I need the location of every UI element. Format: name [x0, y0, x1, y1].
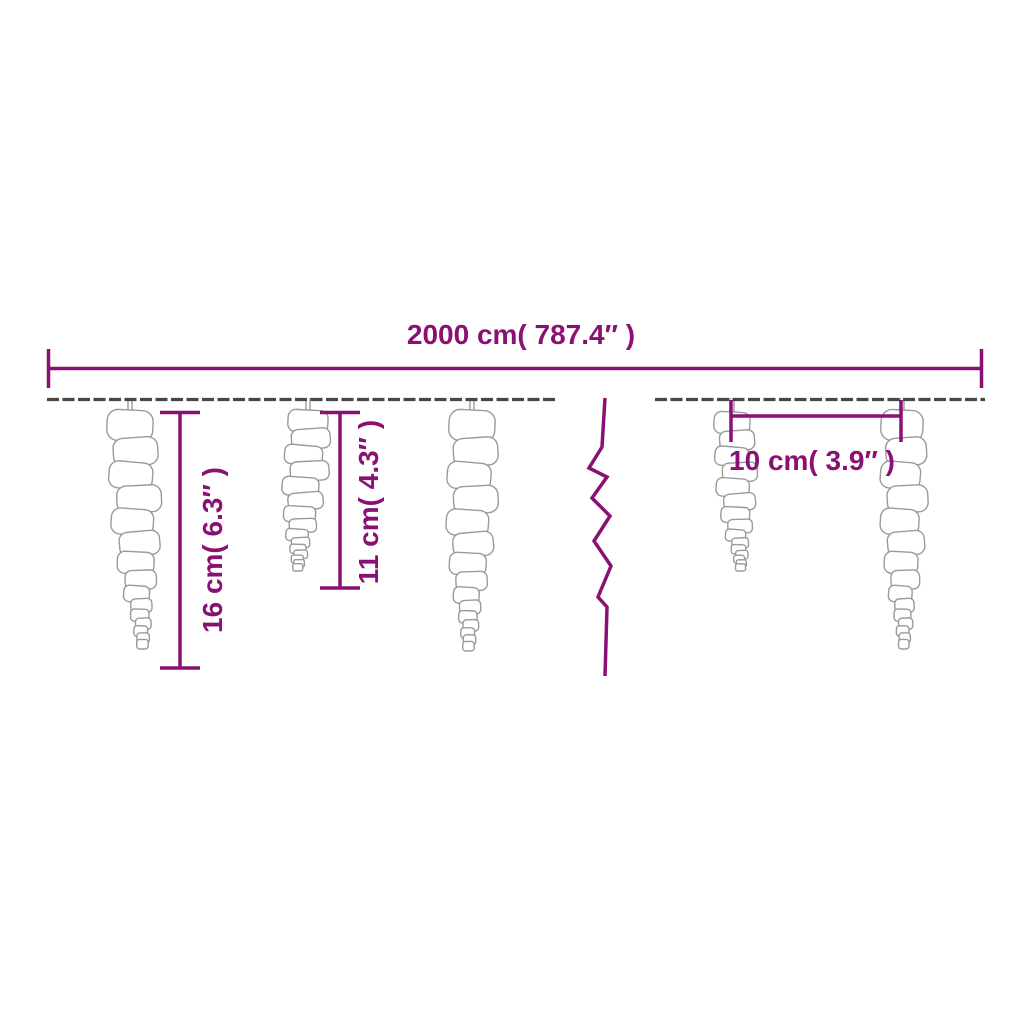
icicle-segment	[293, 564, 303, 571]
icicle-5	[879, 398, 928, 649]
icicle-2	[281, 398, 330, 571]
break-zigzag-icon	[589, 398, 611, 676]
icicle-segment	[736, 564, 746, 571]
icicle-segment	[899, 639, 910, 649]
long-icicle-dimension-label: 16 cm( 6.3″ )	[197, 467, 228, 633]
diagram-canvas: 2000 cm( 787.4″ ) 16 cm( 6.3″ ) 11 cm( 4…	[0, 0, 1024, 1024]
long-icicle-dimension-line	[160, 413, 200, 669]
icicle-spacing-dimension-line	[731, 400, 901, 442]
icicle-1	[106, 398, 162, 649]
icicle-segment	[137, 639, 149, 649]
total-length-dimension-label: 2000 cm( 787.4″ )	[407, 319, 635, 350]
total-length-dimension-line	[49, 349, 982, 388]
dimension-diagram: 2000 cm( 787.4″ ) 16 cm( 6.3″ ) 11 cm( 4…	[0, 0, 1024, 1024]
icicle-spacing-dimension-label: 10 cm( 3.9″ )	[729, 445, 895, 476]
icicle-3	[445, 398, 499, 651]
medium-icicle-dimension-label: 11 cm( 4.3″ )	[353, 420, 384, 584]
icicle-segment	[463, 641, 475, 651]
icicles-layer	[106, 398, 928, 651]
icicle-4	[713, 398, 757, 571]
